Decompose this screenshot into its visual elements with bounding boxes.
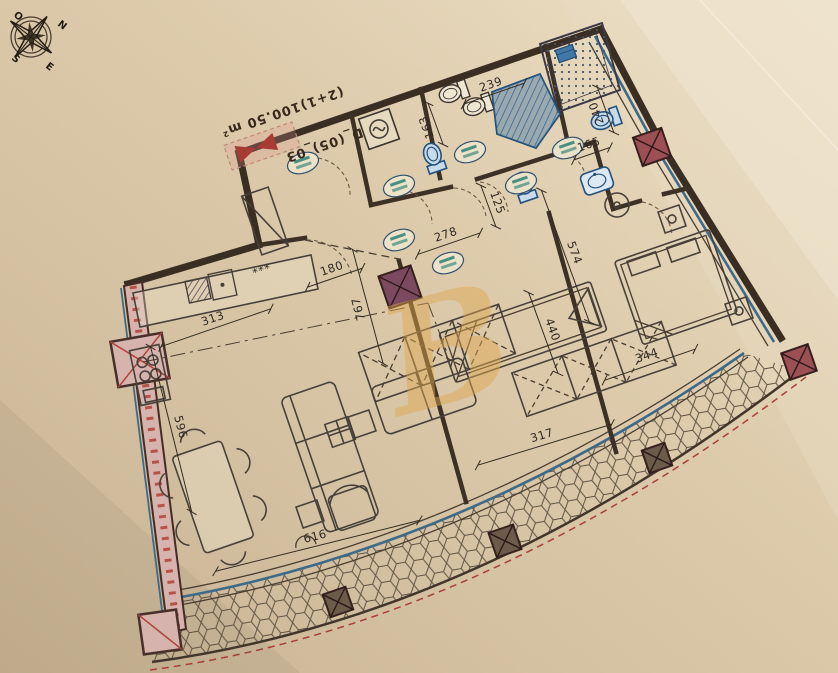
floor-plan-canvas: ONSE [0,0,838,673]
wall-end-block [110,333,169,387]
wall-foot-block [138,610,181,655]
floor-plan-photo: ONSE [0,0,838,673]
